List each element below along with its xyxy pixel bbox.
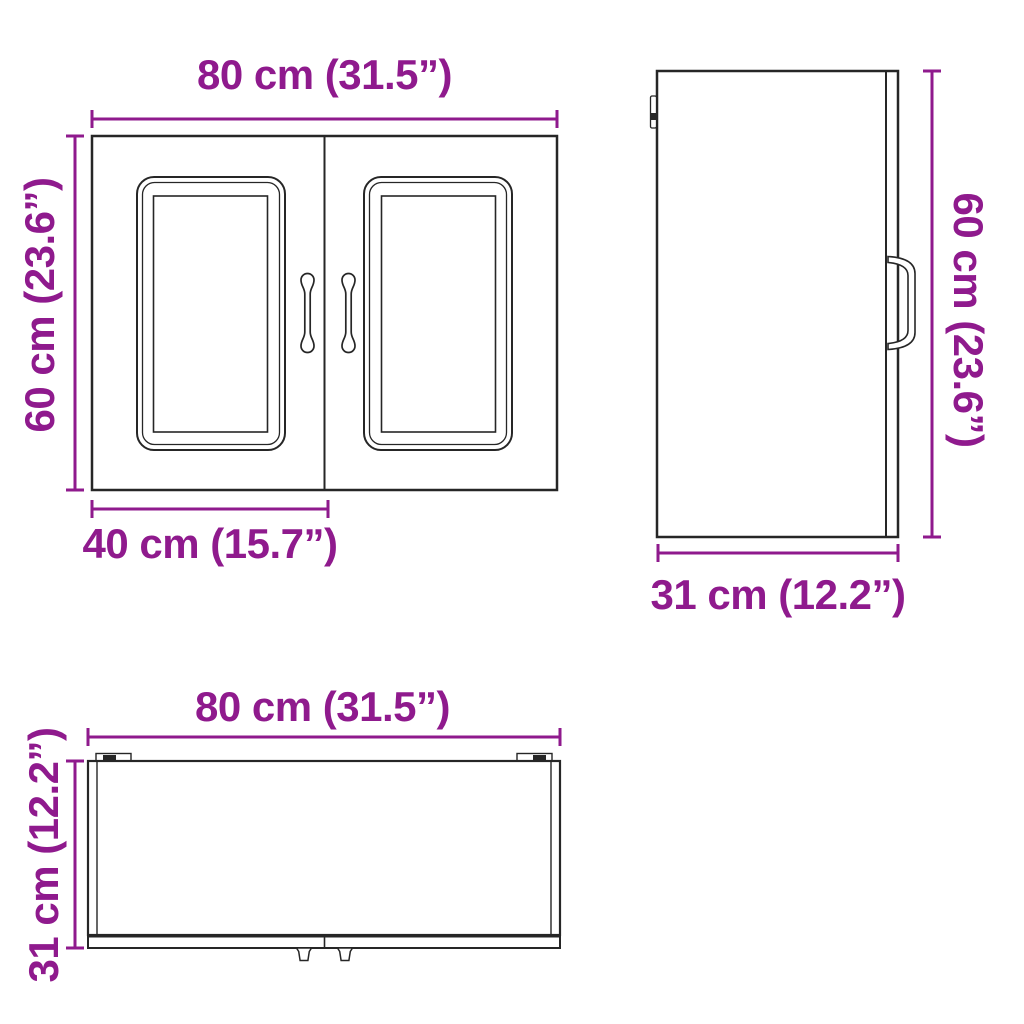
top-depth-label: 31 cm (12.2”) [21, 705, 67, 1005]
side-height-label: 60 cm (23.6”) [945, 140, 991, 500]
product-dimension-diagram: 80 cm (31.5”) 60 cm (23.6”) 40 cm (15.7”… [0, 0, 1024, 1024]
side-hinge [651, 96, 657, 128]
top-left-knob [297, 948, 312, 961]
side-depth-dimension-line [658, 544, 898, 562]
side-depth-label: 31 cm (12.2”) [628, 572, 928, 618]
front-width-dimension-line [92, 110, 557, 128]
front-height-dimension-line [66, 136, 84, 490]
top-view-drawing [66, 728, 560, 961]
front-door-width-dimension-line [92, 500, 328, 518]
front-door-width-label: 40 cm (15.7”) [60, 521, 360, 567]
front-height-label: 60 cm (23.6”) [17, 125, 63, 485]
side-cabinet-body [657, 71, 898, 537]
side-view-drawing [651, 71, 942, 562]
side-height-dimension-line [923, 71, 941, 537]
top-right-knob [338, 948, 353, 961]
cabinet-linework [0, 0, 1024, 1024]
front-view-drawing [66, 110, 557, 518]
top-width-label: 80 cm (31.5”) [90, 684, 555, 730]
top-width-dimension-line [88, 728, 560, 746]
top-cabinet-body [88, 761, 560, 935]
front-width-label: 80 cm (31.5”) [92, 52, 557, 98]
top-depth-dimension-line [66, 761, 84, 948]
